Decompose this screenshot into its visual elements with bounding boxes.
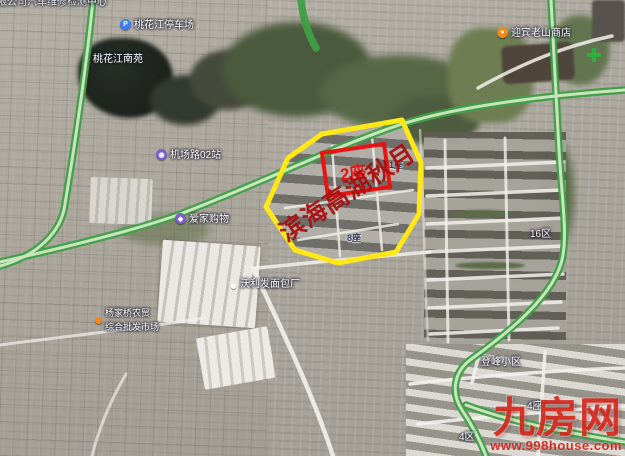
terrain-brown-roofs <box>501 42 575 85</box>
poi-market-label-line1: 杨家桥农贸 <box>105 309 150 318</box>
poi-shopping-label: 爱家购物 <box>189 215 229 225</box>
district-4-label: 4区 <box>459 433 475 443</box>
poi-station-label: 机场路02站 <box>170 151 221 161</box>
watermark-url: www.998house.com <box>490 438 622 453</box>
poi-dot-icon: ● <box>497 27 508 38</box>
poi-car-center-label: 限公司汽车维修检测中心 <box>0 0 107 8</box>
poi-dot-icon <box>231 284 236 289</box>
poi-shop-label: 迎宾老山商店 <box>511 29 571 39</box>
poi-garden-label: 桃花江南苑 <box>93 55 143 65</box>
satellite-map[interactable]: 限公司汽车维修检测中心 P 桃花江停车场 桃花江南苑 ◉ 机场路02站 ◆ 爱家… <box>0 0 625 456</box>
parking-icon: P <box>120 19 131 30</box>
shopping-bag-icon: ◆ <box>175 213 186 224</box>
poi-bakery-label: 沃利发面包厂 <box>240 280 300 290</box>
watermark-logo: 九房网 <box>490 398 622 438</box>
poi-parking-label: 桃花江停车场 <box>134 21 194 31</box>
factory-trees-1 <box>452 210 512 218</box>
watermark: 九房网 www.998house.com <box>490 398 622 453</box>
white-roof-building <box>89 177 153 225</box>
terrain-corner-roofs <box>592 0 625 42</box>
block-8-label: 8座 <box>347 234 361 243</box>
factory-trees-2 <box>455 262 525 269</box>
metro-station-icon: ◉ <box>156 149 167 160</box>
xiaoqu-label: 登峰小区 <box>481 358 521 368</box>
district-16-label: 16区 <box>530 230 551 240</box>
poi-market-label-line2: 综合批发市场 <box>105 323 159 332</box>
poi-dot-icon <box>95 317 102 324</box>
